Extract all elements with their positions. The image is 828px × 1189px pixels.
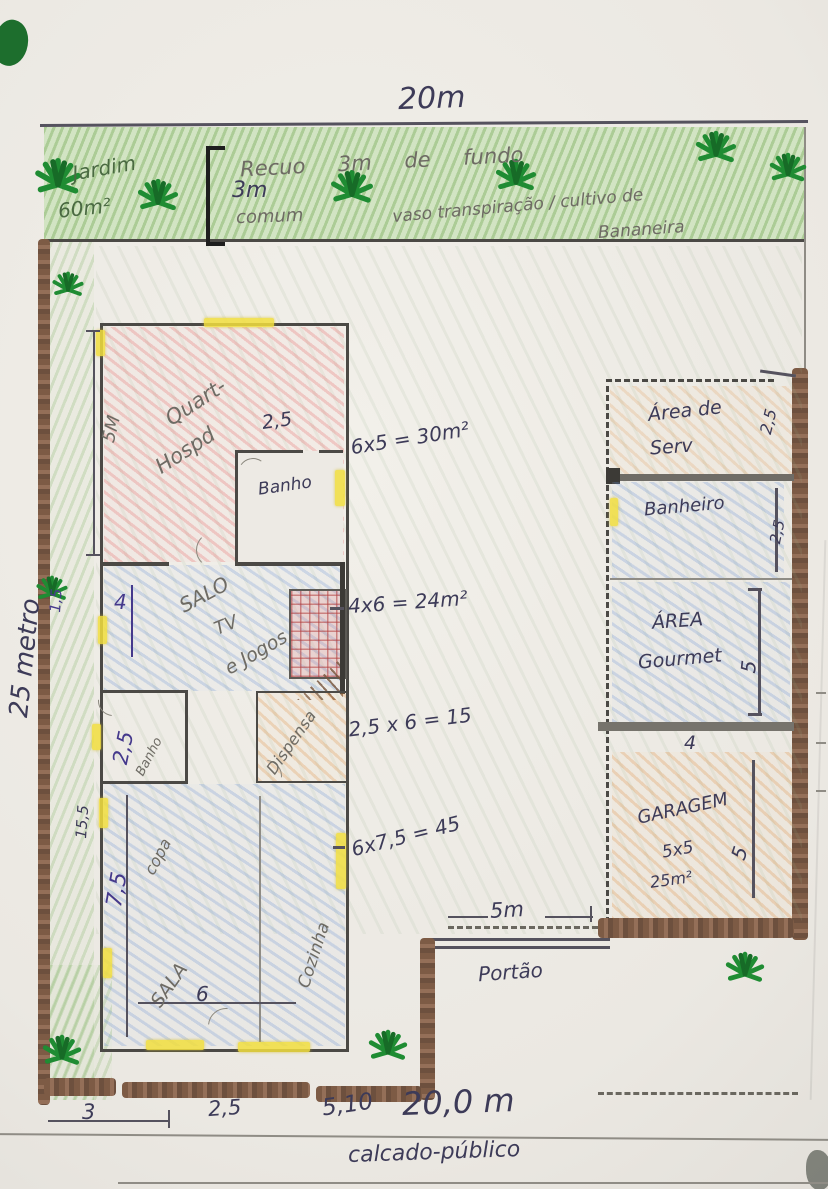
side-dim: 15,5 [74,805,91,839]
jardim-area: 60m² [57,195,112,220]
street-dashed-right [598,1092,798,1095]
gourmet-label: ÁREA [651,610,703,633]
plant-icon [724,951,766,993]
servico-label: Serv [649,437,693,459]
dim-tick [590,906,592,922]
margin-scribble [816,742,826,744]
dim-tick [86,330,100,332]
plant-icon [694,130,738,174]
corner-scribble [0,16,34,70]
dim-line [448,916,488,918]
garagem-front-wall [598,918,794,938]
banho1-top-wall [235,450,303,453]
gate-dashed [448,926,598,929]
gate-label: Portão [477,960,543,984]
wall-banheiro-gourmet [610,578,792,580]
window-marker [238,1042,310,1052]
courtyard-left-wall [420,938,435,1100]
wall-servico-banheiro [606,474,794,481]
sidewalk-label: calcado-público [348,1139,521,1167]
banho1-top-wall [319,450,343,453]
window-marker [336,833,346,889]
wall-quarto-salao [103,562,169,566]
street-wall [44,1078,116,1096]
window-marker [204,318,274,327]
window-marker [146,1040,204,1050]
wall-quarto-salao [235,562,345,566]
garagem-fill [612,752,792,920]
door-arc [196,532,232,568]
wall-reinforced [340,562,345,694]
paper-crease [810,540,827,1100]
margin-scribble [816,790,826,792]
note-leader [330,607,344,610]
servico-top-dashed [606,379,774,382]
dim-tick [86,554,100,556]
plant-icon [768,152,808,192]
plant-icon [136,178,180,222]
copa-dim: 7,5 [104,871,132,909]
lot-width-label: 20m [397,83,465,115]
window-marker [335,470,345,506]
gourmet-dim-right: 5 [738,659,759,674]
dim-line [758,588,761,716]
gourmet-dim-bottom: 4 [684,734,696,753]
cozinha-divider [259,796,261,1042]
side-dim: 4 [114,592,127,612]
side-dim: 1,5 [48,588,65,613]
window-marker [99,798,108,828]
comum-note: comum [236,207,304,227]
sidewalk-line [118,1182,828,1184]
dim-line [131,585,133,657]
recuo-bracket-label: 3m [232,180,267,202]
dim-tick [748,588,762,591]
plant-icon [51,271,85,305]
dim-tick [168,1110,170,1128]
window-marker [98,616,107,644]
sala-dim: 6 [196,984,209,1004]
dim-line [545,916,593,918]
street-dim: 3 [82,1102,95,1123]
banho1-left-wall [235,450,238,563]
street-dim: 5,10 [321,1091,375,1121]
window-marker [103,948,112,978]
dim-line [48,1120,168,1122]
margin-scribble [816,692,826,694]
banho2-right-wall [185,690,188,784]
recuo-bracket [206,146,225,246]
street-dim: 2,5 [207,1097,242,1120]
gate-dim: 5m [489,899,524,922]
gate-line [424,946,610,949]
plant-icon [367,1029,409,1071]
plant-icon [41,1034,83,1076]
dim-tick [748,713,762,716]
window-marker [96,330,105,356]
floor-plan-sketch: 20m 25 metro Jardim 60m² 3m Recuo 3m de … [0,0,828,1189]
dim-line [752,760,755,898]
dim-line [126,795,128,1037]
window-marker [610,498,618,526]
street-total-dim: 20,0 m [401,1084,515,1120]
dim-line [93,330,95,556]
banho1-dim: 2,5 [261,410,294,433]
garden-bottom-wall [44,239,806,242]
window-marker [92,724,101,750]
gate-line [424,938,610,941]
lot-top-wall [40,120,808,127]
note-leader [333,846,345,849]
lot-left-wall [38,239,50,1105]
wall-gourmet-garagem [598,722,794,731]
